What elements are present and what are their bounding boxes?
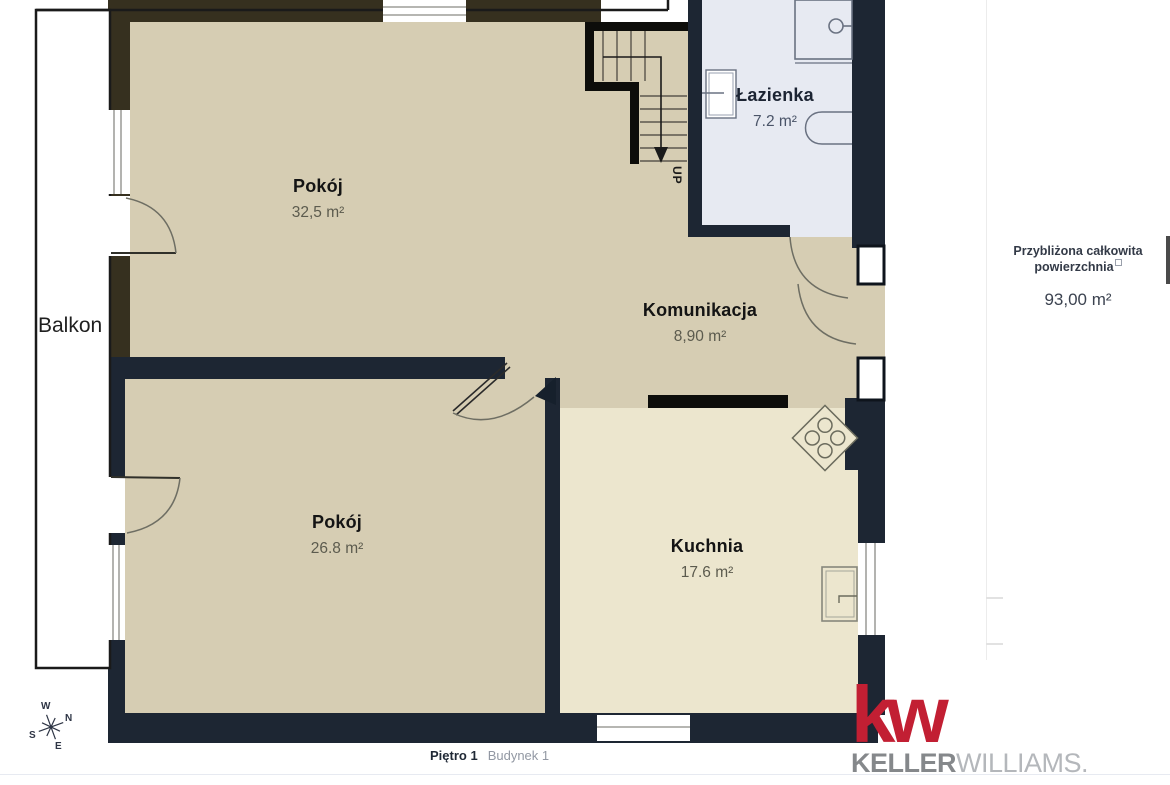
kw-logo-name-light: WILLIAMS. — [956, 748, 1088, 778]
compass-east-label: E — [55, 741, 62, 752]
total-area-label-line1: Przybliżona całkowita — [1013, 244, 1142, 258]
compass-north-label: N — [65, 713, 72, 724]
kitchen-sink-icon — [822, 567, 857, 621]
window-left-upper — [108, 110, 130, 194]
compass-south-label: S — [29, 730, 36, 741]
stairs-up-label: UP — [670, 166, 684, 185]
floor-selector-caption[interactable]: Piętro 1 Budynek 1 — [430, 748, 549, 763]
floorplan-viewer: UP — [0, 0, 1170, 785]
floorplan-detail-layer: UP — [0, 0, 1170, 785]
door-entry — [798, 246, 884, 400]
shower-icon — [795, 0, 852, 63]
panel-tick-lower — [986, 643, 1003, 645]
panel-tick-upper — [986, 597, 1003, 599]
door-balcony-lower — [108, 477, 180, 533]
compass-icon: W N S E — [29, 701, 72, 752]
door-interior-room — [453, 363, 556, 420]
scrollbar-thumb[interactable] — [1166, 236, 1170, 284]
window-right-kitchen — [858, 543, 885, 635]
floor-label: Piętro 1 — [430, 748, 478, 763]
total-area-panel: Przybliżona całkowita powierzchnia 93,00… — [992, 243, 1164, 310]
kw-logo-name-bold: KELLER — [851, 748, 956, 778]
door-balcony-upper — [108, 196, 176, 256]
kw-logo-name: KELLERWILLIAMS. — [851, 750, 1088, 777]
balcony-outline — [36, 0, 668, 668]
balcony-label: Balkon — [38, 314, 102, 338]
window-left-lower — [108, 545, 125, 640]
keller-williams-logo: kw KELLERWILLIAMS. — [851, 682, 1088, 777]
window-top-wall — [383, 0, 466, 22]
compass-west-label: W — [41, 701, 51, 712]
staircase: UP — [603, 31, 687, 185]
building-label: Budynek 1 — [488, 748, 549, 763]
toilet-icon — [806, 112, 853, 144]
total-area-value: 93,00 m² — [992, 290, 1164, 310]
window-bottom-wall — [597, 715, 690, 741]
stove-icon — [792, 405, 857, 470]
bathroom-sink-icon — [702, 70, 736, 118]
kw-logo-mark: kw — [851, 682, 1088, 748]
panel-divider — [986, 0, 987, 660]
footnote-marker-icon — [1115, 259, 1122, 266]
total-area-label-line2: powierzchnia — [1034, 260, 1113, 274]
